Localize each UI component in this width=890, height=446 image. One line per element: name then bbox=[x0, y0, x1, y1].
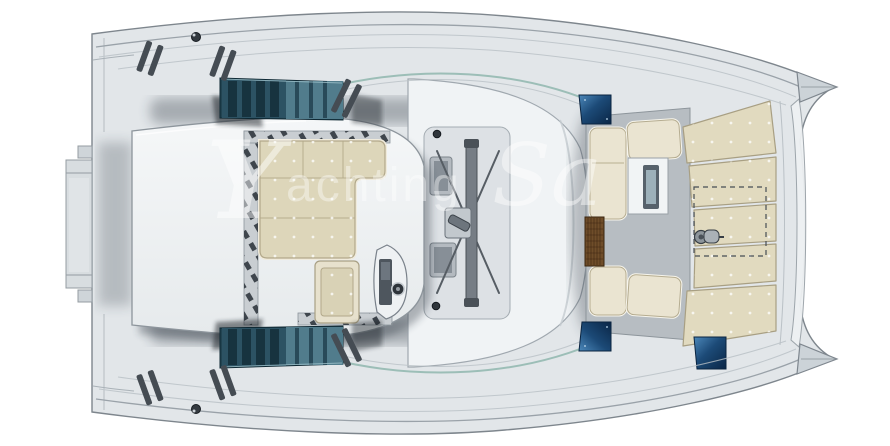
deck-hatch-coachroof bbox=[579, 95, 611, 124]
winch-starboard-drum bbox=[434, 247, 452, 273]
deck-hatch-bow-starboard bbox=[694, 337, 726, 369]
boom-end-forward bbox=[464, 139, 479, 148]
shadow-stern bbox=[98, 142, 132, 306]
transom-step-port bbox=[78, 146, 92, 158]
settee-cushion-starboard bbox=[627, 274, 682, 318]
swim-platform-step bbox=[69, 178, 89, 272]
transom-step-starboard bbox=[78, 290, 92, 302]
window-glass-light bbox=[286, 81, 343, 119]
foredeck-sunpads bbox=[683, 101, 776, 346]
salon-side-window bbox=[220, 78, 343, 120]
helm-display bbox=[381, 262, 390, 280]
deck-screw-top bbox=[433, 130, 441, 138]
boom-end-aft bbox=[464, 298, 479, 307]
teak-grate bbox=[585, 217, 604, 266]
wheel-hub bbox=[396, 287, 400, 291]
forward-cockpit bbox=[585, 108, 690, 340]
catamaran-deck-plan: Y achting Sa bbox=[0, 0, 890, 446]
settee-cushion-port bbox=[627, 119, 682, 161]
deck-plan-drawing bbox=[0, 0, 890, 446]
cleat-highlight bbox=[193, 34, 196, 37]
deck-screw-bottom bbox=[432, 302, 440, 310]
cleat-icon bbox=[192, 33, 201, 42]
cockpit-module-window bbox=[646, 170, 656, 204]
settee-cushion-corner-port bbox=[590, 128, 626, 219]
winch-port-drum bbox=[434, 161, 448, 191]
mast-and-boom-area bbox=[424, 127, 510, 319]
settee-cushion-corner-starboard bbox=[590, 267, 626, 315]
